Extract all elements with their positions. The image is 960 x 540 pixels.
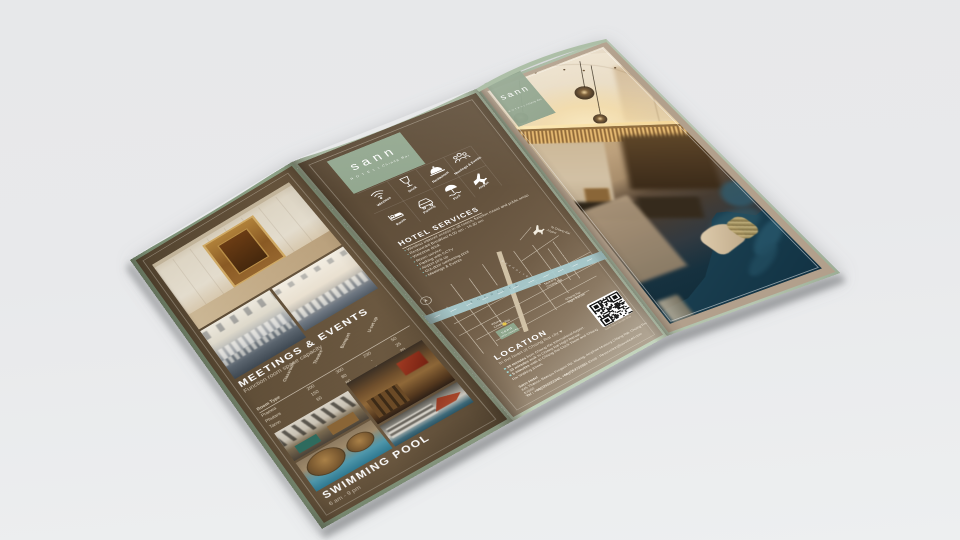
svg-text:Room: Room	[395, 217, 407, 226]
svg-text:Meetings & Events: Meetings & Events	[453, 155, 483, 175]
